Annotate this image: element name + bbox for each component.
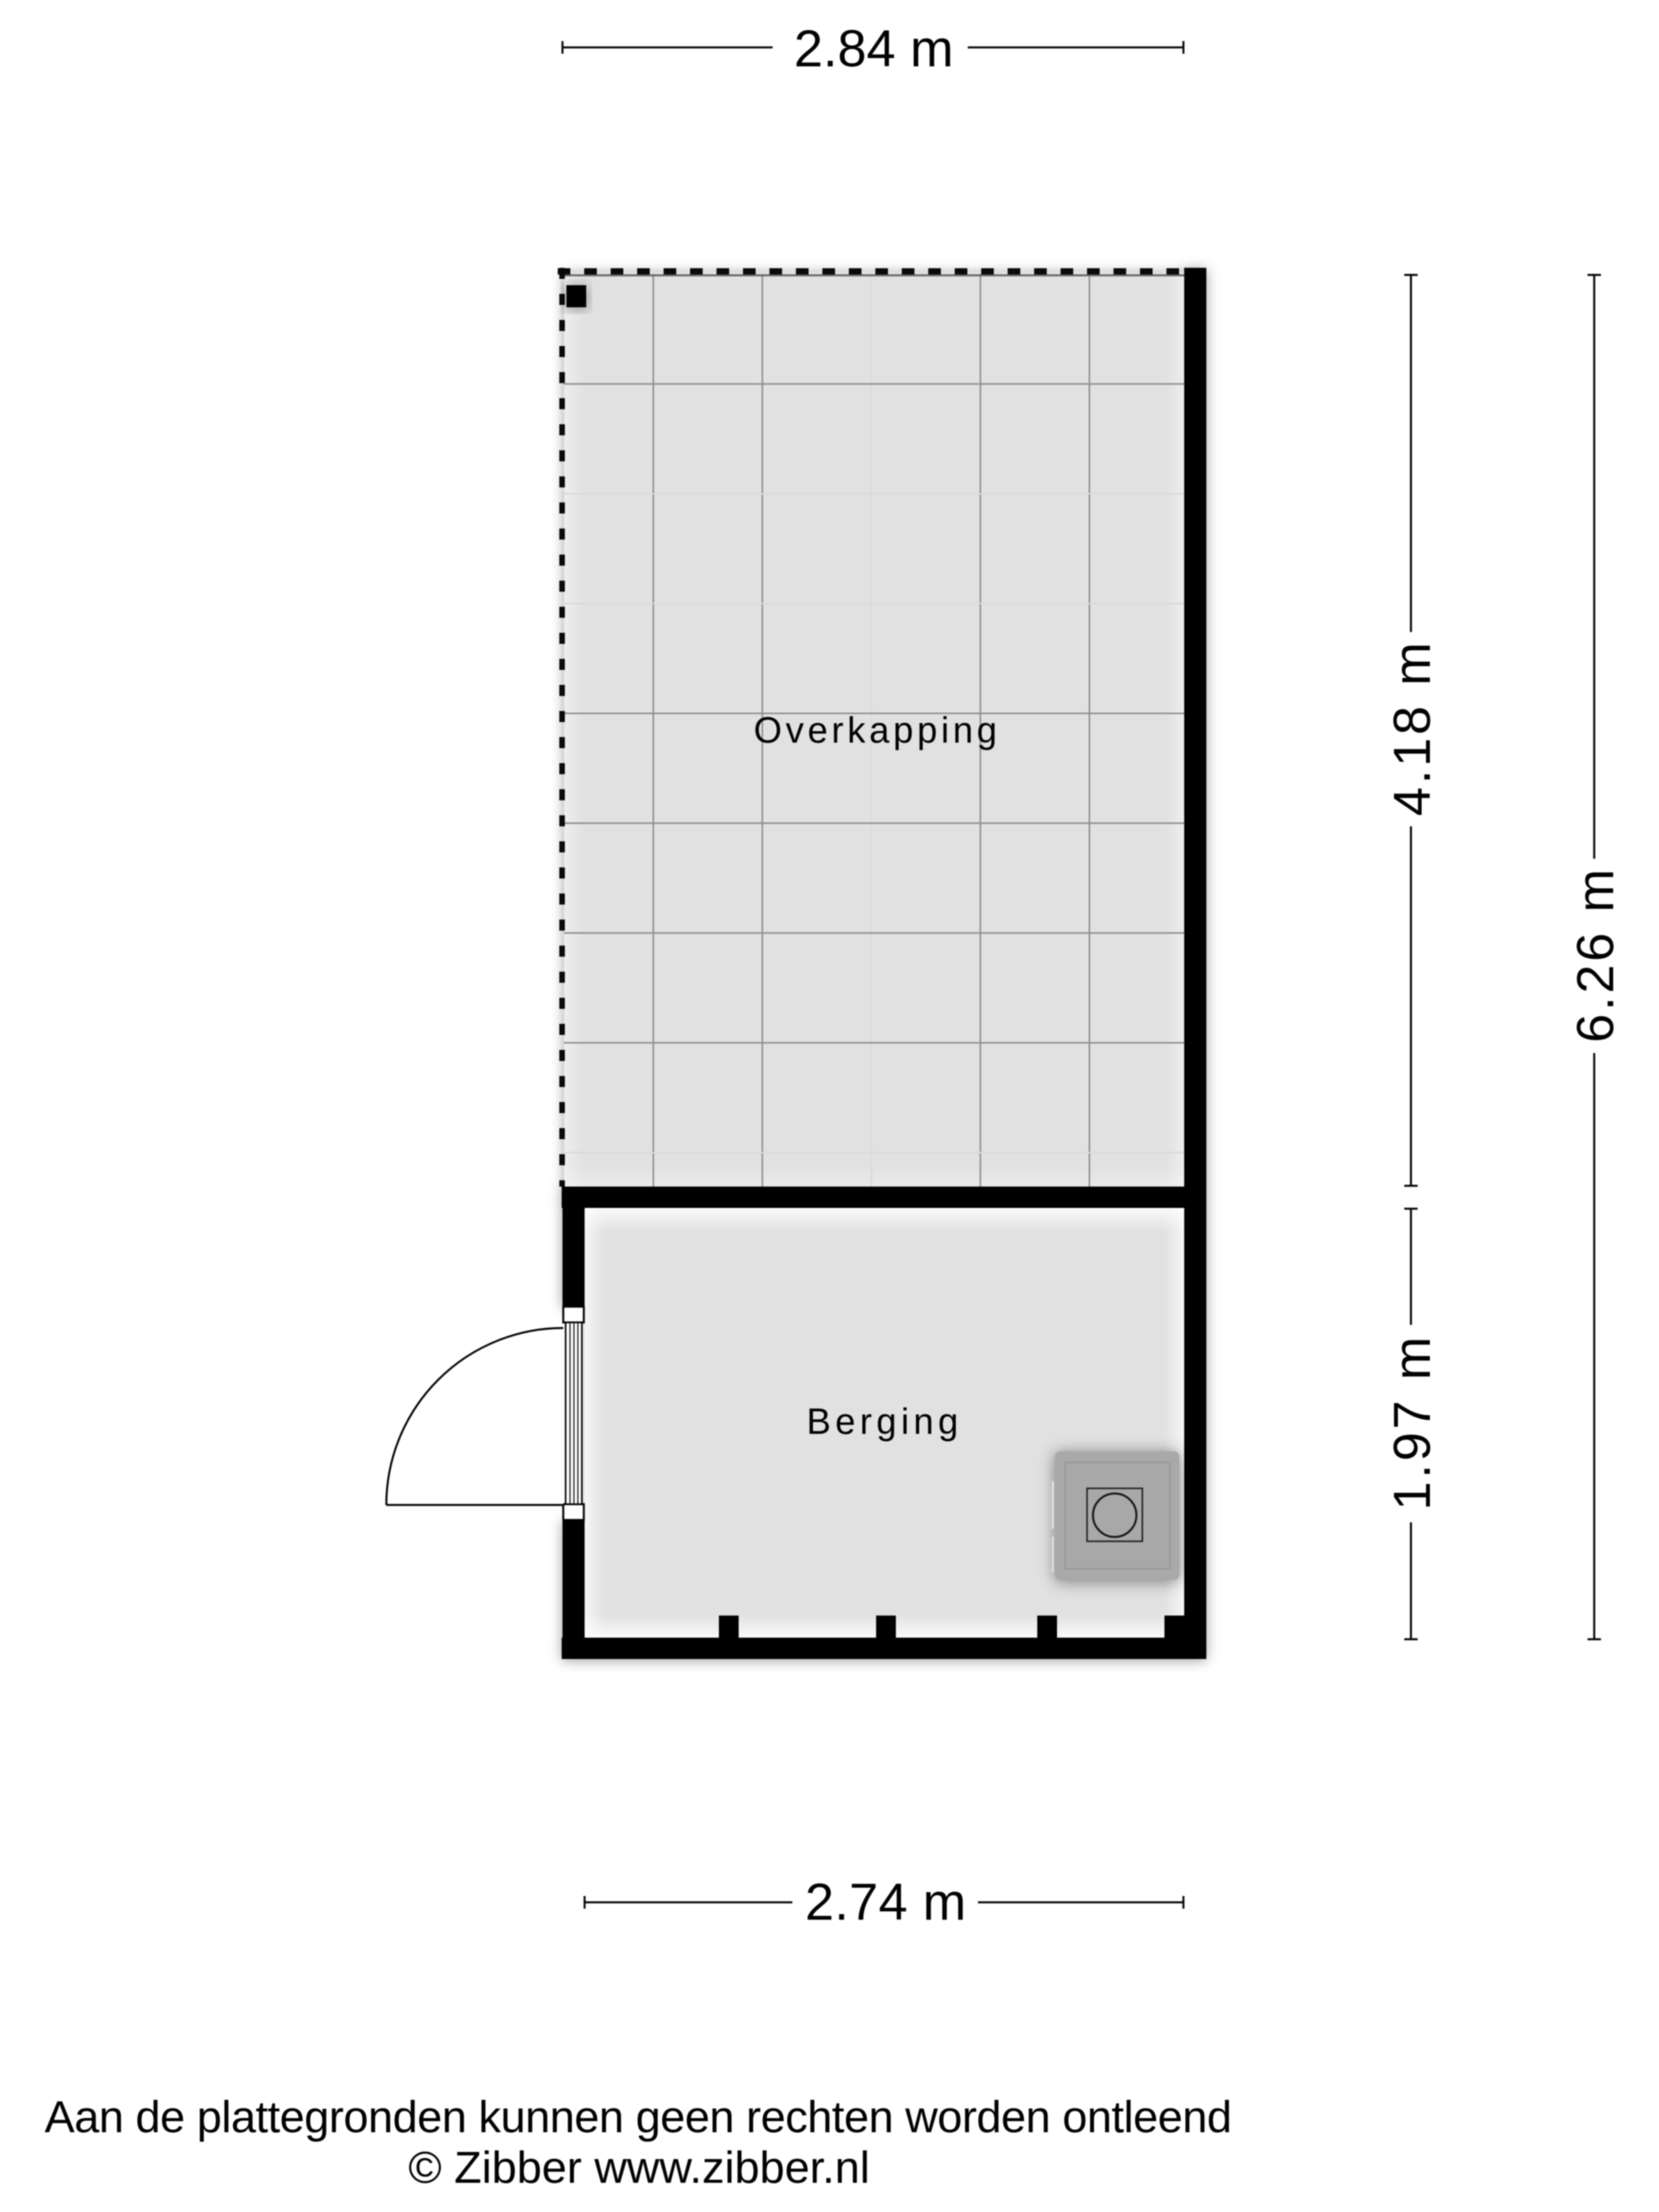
svg-text:4.18 m: 4.18 m <box>1382 642 1441 816</box>
svg-text:© Zibber www.zibber.nl: © Zibber www.zibber.nl <box>408 2142 870 2193</box>
svg-text:6.26 m: 6.26 m <box>1566 869 1624 1043</box>
svg-text:1.97 m: 1.97 m <box>1382 1337 1441 1510</box>
svg-text:Overkapping: Overkapping <box>754 709 997 750</box>
svg-text:Aan de plattegronden kunnen ge: Aan de plattegronden kunnen geen rechten… <box>45 2092 1232 2142</box>
svg-text:2.84 m: 2.84 m <box>794 19 954 77</box>
svg-text:2.74 m: 2.74 m <box>805 1872 966 1931</box>
